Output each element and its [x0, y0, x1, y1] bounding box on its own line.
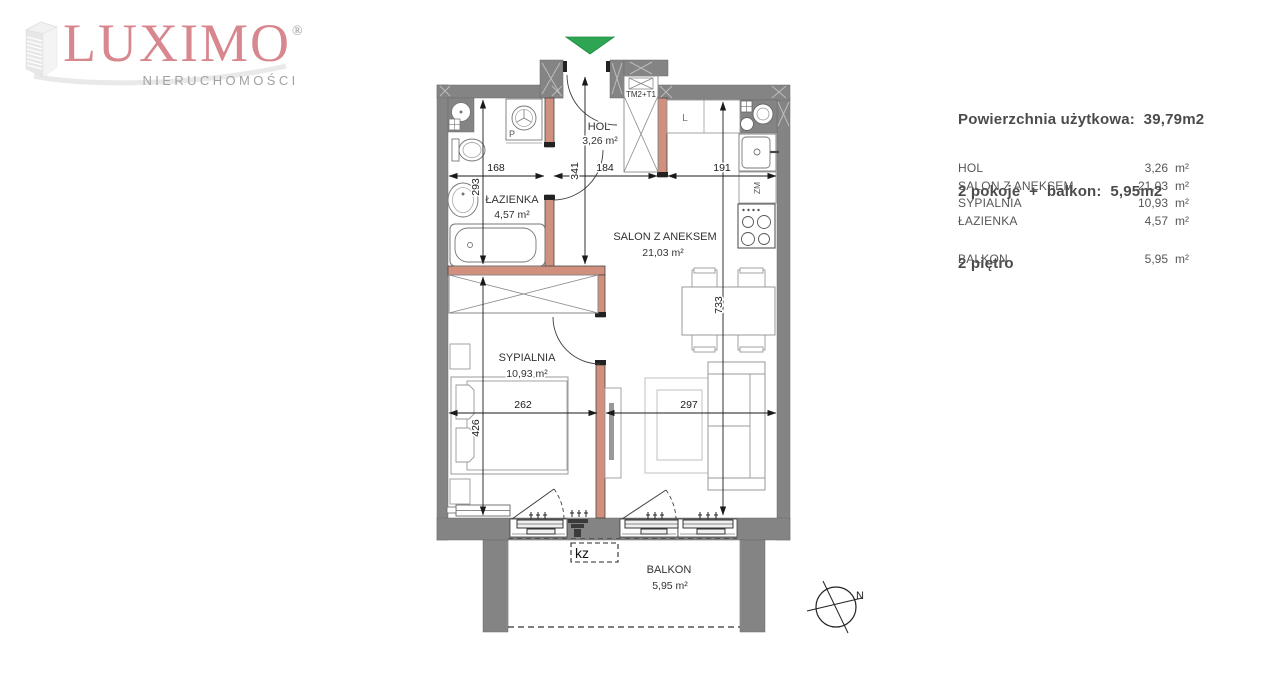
- balcony-outline: [508, 539, 740, 628]
- room-area-value: 21,03: [1122, 178, 1168, 196]
- dim-kitchen-width: 191: [713, 162, 731, 174]
- bedroom-radiator: [447, 505, 510, 516]
- room-area-value: 5,95: [1122, 251, 1168, 269]
- room-area-value: 3,26: [1122, 160, 1168, 178]
- logo: LUXIMO® NIERUCHOMOŚCI: [24, 16, 303, 88]
- bed: [451, 377, 568, 474]
- floor-plan-drawing: kz TM2+T1: [425, 20, 875, 670]
- building-icon: [24, 20, 60, 80]
- dishwasher-label: ZM: [752, 182, 762, 194]
- room-label-lazienka: ŁAZIENKA: [485, 194, 539, 206]
- room-label-sypialnia: SYPIALNIA: [499, 352, 557, 364]
- brand-word: LUXIMO: [63, 13, 291, 73]
- floor-plan-page: LUXIMO® NIERUCHOMOŚCI Powierzchnia użytk…: [0, 0, 1262, 681]
- table-row: HOL 3,26 m²: [958, 160, 1194, 178]
- dining-table: [682, 287, 775, 335]
- room-name: ŁAZIENKA: [958, 213, 1122, 231]
- table-row: SYPIALNIA 10,93 m²: [958, 195, 1194, 213]
- table-row: ŁAZIENKA 4,57 m²: [958, 213, 1194, 231]
- north-label: N: [856, 590, 864, 602]
- registered-mark: ®: [292, 24, 303, 39]
- room-label-hol: HOL: [588, 121, 611, 133]
- dim-hall-width: 184: [596, 162, 614, 174]
- wardrobe: [449, 275, 598, 313]
- room-area-value: 10,93: [1122, 195, 1168, 213]
- room-area-unit: m²: [1168, 178, 1194, 196]
- dim-bedroom-depth: 426: [470, 419, 482, 437]
- room-area-sypialnia: 10,93 m²: [506, 368, 548, 380]
- kitchen-counter: L: [667, 100, 740, 133]
- table-row: SALON Z ANEKSEM 21,03 m²: [958, 178, 1194, 196]
- room-area-unit: m²: [1168, 251, 1194, 269]
- brand-subtitle: NIERUCHOMOŚCI: [142, 73, 302, 88]
- logo-text: LUXIMO® NIERUCHOMOŚCI: [63, 16, 303, 88]
- room-name: HOL: [958, 160, 1122, 178]
- sofa: [708, 362, 765, 490]
- room-name: BALKON: [958, 251, 1122, 269]
- washing-machine-label: P: [509, 129, 515, 139]
- installation-shaft: TM2+T1: [624, 76, 658, 172]
- room-area-balkon: 5,95 m²: [652, 580, 688, 592]
- room-name: SALON Z ANEKSEM: [958, 178, 1122, 196]
- ac-outdoor-unit-box: kz: [571, 543, 618, 562]
- shaft-label: TM2+T1: [626, 90, 657, 99]
- washing-machine: P: [506, 99, 542, 143]
- dim-bathroom-depth: 293: [470, 178, 482, 196]
- dim-salon-width: 297: [680, 399, 698, 411]
- bathtub: [450, 224, 545, 266]
- dim-hall-depth: 341: [569, 162, 581, 180]
- kitchen-sink: [739, 134, 779, 171]
- room-area-salon: 21,03 m²: [642, 247, 684, 259]
- dishwasher: ZM: [739, 172, 776, 203]
- stove: [738, 204, 775, 248]
- brand-name: LUXIMO®: [63, 16, 303, 70]
- rug: [645, 378, 715, 473]
- dim-bedroom-width: 262: [514, 399, 532, 411]
- room-area-table: HOL 3,26 m² SALON Z ANEKSEM 21,03 m² SYP…: [958, 160, 1194, 269]
- room-area-lazienka: 4,57 m²: [494, 209, 530, 221]
- table-row: BALKON 5,95 m²: [958, 251, 1194, 269]
- room-area-unit: m²: [1168, 195, 1194, 213]
- room-label-salon: SALON Z ANEKSEM: [613, 231, 716, 243]
- room-area-unit: m²: [1168, 160, 1194, 178]
- ac-unit-label: kz: [575, 545, 589, 561]
- summary-usable-area: Powierzchnia użytkowa: 39,79m2: [958, 108, 1204, 132]
- room-label-balkon: BALKON: [647, 564, 692, 576]
- fridge-label: L: [682, 113, 688, 124]
- toilet: [452, 139, 485, 161]
- tv-unit: [605, 388, 621, 478]
- room-area-unit: m²: [1168, 213, 1194, 231]
- room-area-hol: 3,26 m²: [582, 135, 618, 147]
- room-name: SYPIALNIA: [958, 195, 1122, 213]
- room-area-value: 4,57: [1122, 213, 1168, 231]
- north-compass: N: [807, 581, 864, 633]
- dim-bathroom-width: 168: [487, 162, 505, 174]
- entrance-arrow-icon: [566, 37, 614, 54]
- dim-salon-depth: 733: [713, 296, 725, 314]
